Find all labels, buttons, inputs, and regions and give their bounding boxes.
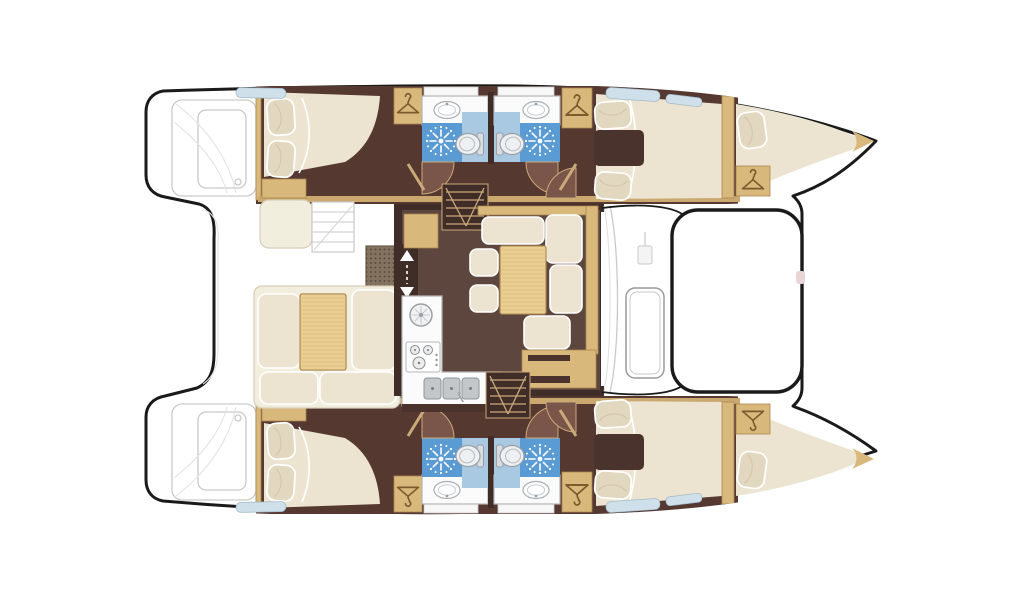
bench-cushion-aft-2	[320, 372, 396, 404]
cockpit-steps	[312, 202, 354, 252]
bowsprit-fitting	[796, 271, 805, 284]
stool	[470, 285, 498, 312]
bench-cushion-aft-1	[260, 372, 318, 404]
floor-plan-svg	[0, 0, 1024, 600]
foredeck-hatch	[626, 288, 664, 378]
stove-icon	[406, 342, 440, 372]
bench-cushion-right	[352, 290, 396, 370]
port-hull	[172, 86, 874, 204]
nav-desk	[522, 350, 596, 388]
bench-cushion-left	[258, 294, 300, 368]
round-sink	[410, 304, 432, 326]
salon-cabinet	[404, 214, 438, 248]
catamaran-floor-plan	[0, 0, 1024, 600]
galley-sinks	[424, 378, 479, 402]
settee-cushion	[546, 215, 582, 263]
cockpit-table	[300, 294, 346, 370]
salon	[394, 184, 604, 418]
forward-platform	[672, 210, 805, 392]
settee-cushion	[524, 316, 570, 349]
settee-cushion	[482, 217, 544, 244]
settee-cushion	[550, 265, 582, 313]
stool	[470, 249, 498, 276]
salon-table	[500, 246, 546, 314]
deck-grate	[366, 246, 398, 290]
helm-seat	[260, 200, 312, 248]
stairs-starboard	[486, 372, 530, 418]
salon-entry	[394, 244, 418, 302]
